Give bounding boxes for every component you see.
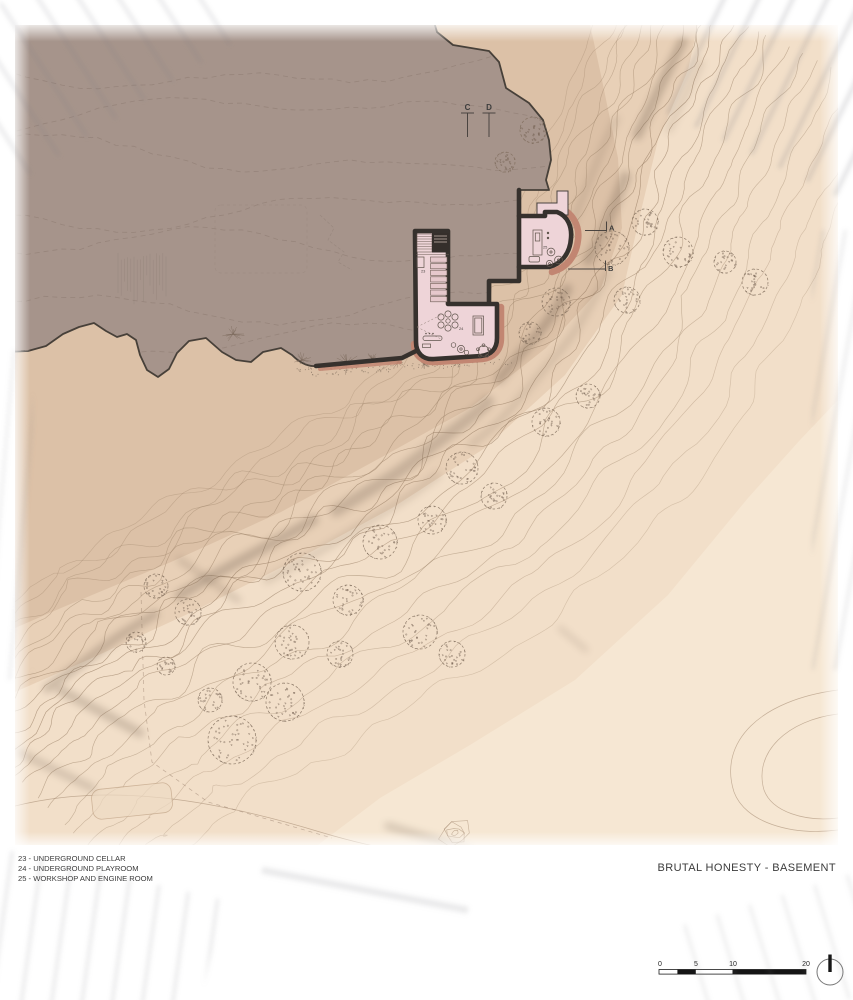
legend-entry: 23 - UNDERGROUND CELLAR: [18, 854, 126, 863]
wine-shelf: [431, 283, 448, 288]
section-marker-a: A: [609, 224, 615, 233]
wine-shelf: [431, 290, 448, 295]
room-number-workshop: 25: [543, 245, 547, 250]
room-number-cellar: 23: [421, 269, 425, 274]
drawing-sheet: 23 24 25 C D A B 23 - UNDERGROUND CELLAR…: [0, 0, 853, 1000]
scale-label-0: 0: [658, 961, 662, 968]
section-marker-c: C: [465, 103, 471, 112]
scale-label-20: 20: [802, 961, 810, 968]
section-marker-d: D: [486, 103, 492, 112]
map-area: 23 24 25 C D A B: [0, 0, 853, 896]
section-marker-b: B: [608, 264, 614, 273]
north-arrow-icon: [817, 955, 843, 986]
wine-shelf: [431, 257, 448, 262]
wine-shelf: [431, 277, 448, 282]
wine-shelf: [431, 297, 448, 302]
scale-bar-segment: [677, 970, 695, 975]
wine-shelves: [431, 257, 448, 302]
scale-bar: 0 5 10 20: [658, 961, 810, 974]
scale-label-10: 10: [729, 961, 737, 968]
scale-bar-segment: [733, 970, 807, 975]
legend-entry: 25 - WORKSHOP AND ENGINE ROOM: [18, 874, 153, 883]
site-plan-drawing: 23 24 25 C D A B 23 - UNDERGROUND CELLAR…: [0, 0, 853, 1000]
wine-shelf: [431, 264, 448, 269]
legend-entry: 24 - UNDERGROUND PLAYROOM: [18, 864, 139, 873]
wine-shelf: [431, 270, 448, 275]
scale-label-5: 5: [694, 961, 698, 968]
room-workshop-engine: [519, 212, 571, 267]
title-block: 23 - UNDERGROUND CELLAR 24 - UNDERGROUND…: [18, 854, 843, 985]
drawing-title: BRUTAL HONESTY - BASEMENT: [658, 862, 837, 874]
